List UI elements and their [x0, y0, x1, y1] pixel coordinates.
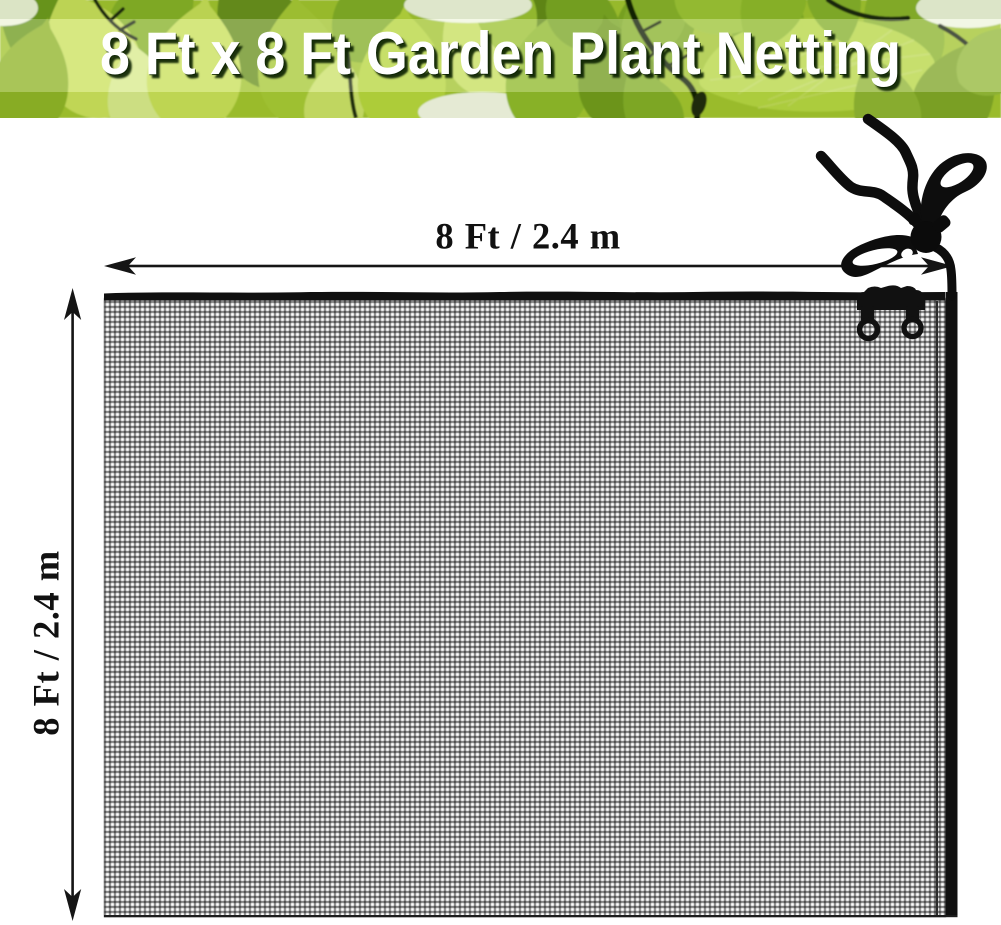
svg-text:8 Ft / 2.4 m: 8 Ft / 2.4 m [26, 550, 67, 735]
svg-text:8 Ft / 2.4 m: 8 Ft / 2.4 m [435, 216, 620, 257]
